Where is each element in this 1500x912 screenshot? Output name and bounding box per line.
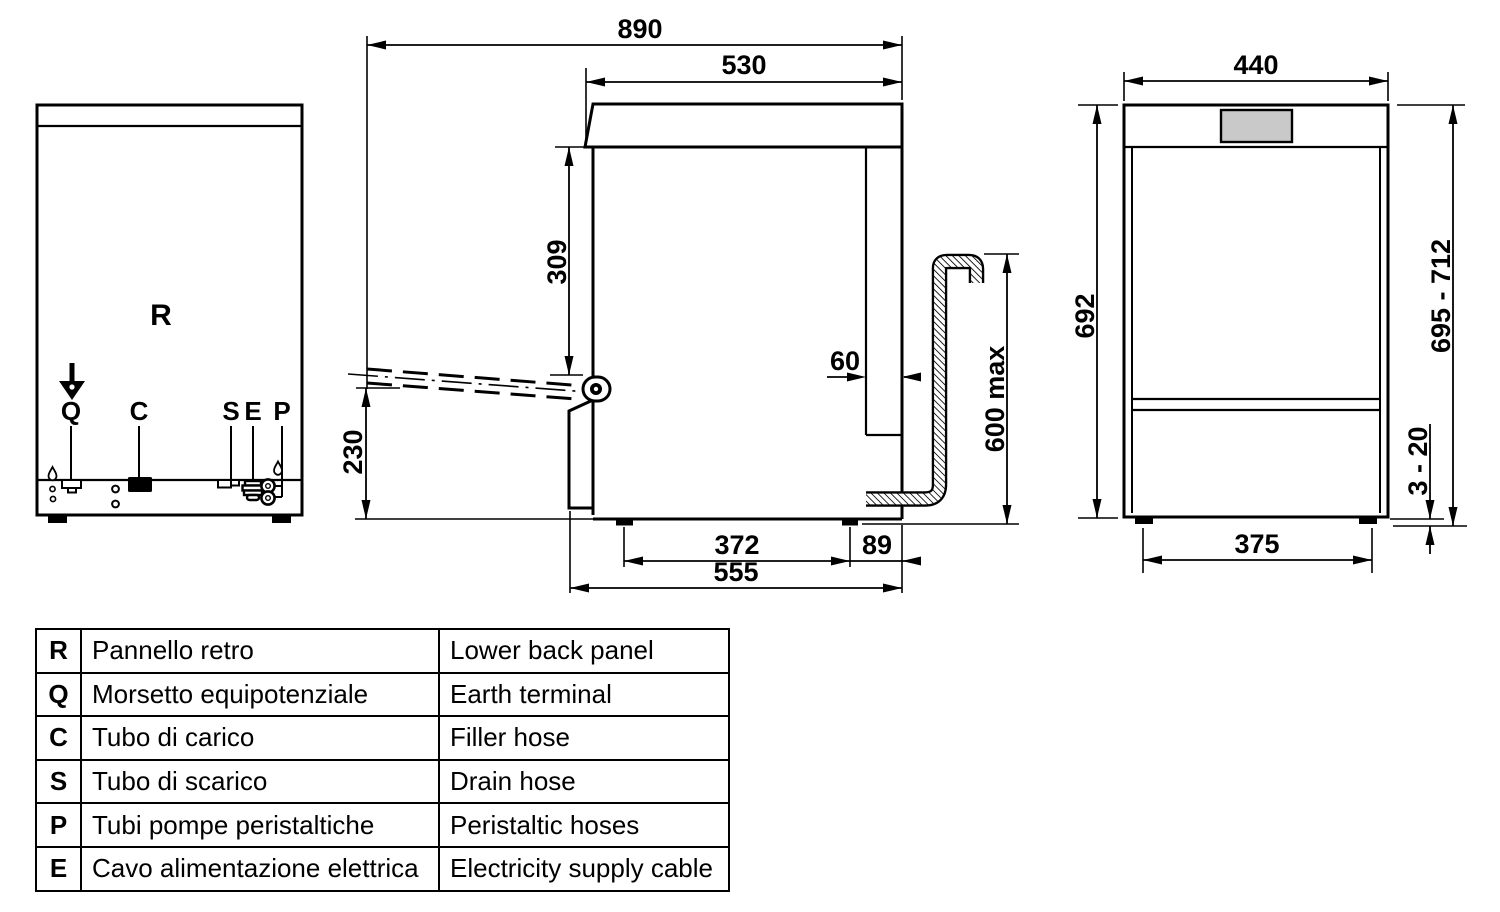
earth-arrow-dot — [69, 384, 74, 389]
dim-60-text: 60 — [830, 346, 860, 376]
dim-692-text: 692 — [1070, 293, 1100, 338]
rear-view: R Q C S E P — [37, 105, 302, 523]
legend-italian: Cavo alimentazione elettrica — [81, 847, 439, 891]
dim-600max-text: 600 max — [980, 346, 1010, 453]
label-peristaltic: P — [273, 396, 290, 426]
front-view: 440 692 695 - 712 3 - 20 — [1070, 50, 1467, 573]
earth-terminal-tab — [68, 488, 76, 493]
legend-table: R Pannello retro Lower back panel Q Mors… — [35, 628, 730, 892]
dim-309-text: 309 — [542, 239, 572, 284]
side-door-lower-profile — [569, 400, 593, 508]
vent-hole — [50, 486, 55, 491]
legend-row-s: S Tubo di scarico Drain hose — [36, 760, 729, 804]
dim-695-712-text: 695 - 712 — [1426, 239, 1456, 353]
earth-terminal — [62, 480, 81, 488]
water-drop-icon-2 — [274, 462, 282, 475]
dim-375-text: 375 — [1234, 529, 1279, 559]
control-display — [1221, 110, 1292, 142]
legend-italian: Tubo di carico — [81, 716, 439, 760]
dim-230-text: 230 — [338, 429, 368, 474]
earth-symbol-icon — [59, 363, 85, 400]
legend-english: Electricity supply cable — [439, 847, 729, 891]
side-view: 890 530 309 230 — [338, 14, 1019, 593]
dim-692: 692 — [1070, 105, 1118, 518]
door-hinge — [583, 377, 610, 401]
legend-letter: C — [36, 716, 81, 760]
drain-outlet — [218, 480, 231, 488]
front-body-outline — [1124, 105, 1388, 517]
dim-89: 89 — [850, 525, 921, 593]
legend-letter: S — [36, 760, 81, 804]
vent-hole — [50, 496, 55, 501]
legend-letter: R — [36, 629, 81, 673]
legend-english: Lower back panel — [439, 629, 729, 673]
side-front-foot — [616, 519, 633, 526]
legend-english: Drain hose — [439, 760, 729, 804]
legend-italian: Tubo di scarico — [81, 760, 439, 804]
legend-italian: Tubi pompe peristaltiche — [81, 803, 439, 847]
rear-components — [49, 462, 283, 508]
legend-english: Filler hose — [439, 716, 729, 760]
filler-hose-inlet — [128, 477, 152, 492]
legend-row-p: P Tubi pompe peristaltiche Peristaltic h… — [36, 803, 729, 847]
dim-230: 230 — [338, 388, 400, 519]
front-left-foot — [1135, 517, 1153, 524]
legend-letter: Q — [36, 673, 81, 717]
open-door-dashed — [348, 369, 601, 399]
drain-outlet-tab — [231, 480, 239, 486]
dim-440-text: 440 — [1233, 50, 1278, 80]
label-filler-hose: C — [130, 396, 149, 426]
dim-309: 309 — [542, 147, 585, 375]
side-rear-foot — [842, 519, 858, 526]
rear-right-foot — [272, 515, 291, 523]
technical-drawing-page: R Q C S E P — [0, 0, 1500, 912]
dim-60: 60 — [827, 346, 921, 382]
dim-3-20-text: 3 - 20 — [1403, 426, 1433, 495]
drain-hose — [866, 262, 977, 500]
dim-375: 375 — [1143, 528, 1372, 573]
dim-890-text: 890 — [617, 14, 662, 44]
legend-english: Peristaltic hoses — [439, 803, 729, 847]
dim-89-text: 89 — [862, 530, 892, 560]
dim-890: 890 — [367, 14, 902, 389]
dim-372-text: 372 — [714, 530, 759, 560]
screw-hole — [112, 501, 119, 508]
legend-letter: P — [36, 803, 81, 847]
legend-italian: Morsetto equipotenziale — [81, 673, 439, 717]
rear-left-foot — [48, 515, 67, 523]
front-right-foot — [1359, 517, 1377, 524]
legend-row-c: C Tubo di carico Filler hose — [36, 716, 729, 760]
legend-english: Earth terminal — [439, 673, 729, 717]
side-top-band — [585, 104, 902, 147]
legend-letter: E — [36, 847, 81, 891]
label-supply-cable: E — [244, 396, 261, 426]
legend-row-q: Q Morsetto equipotenziale Earth terminal — [36, 673, 729, 717]
water-drop-icon — [49, 467, 57, 480]
label-earth-terminal: Q — [61, 396, 81, 426]
dim-555-text: 555 — [713, 557, 758, 587]
legend-row-e: E Cavo alimentazione elettrica Electrici… — [36, 847, 729, 891]
dim-3-20: 3 - 20 — [1390, 424, 1444, 554]
peristaltic-hoses — [261, 479, 274, 504]
screw-hole — [112, 486, 119, 493]
dim-530-text: 530 — [721, 50, 766, 80]
label-drain-hose: S — [222, 396, 239, 426]
legend-italian: Pannello retro — [81, 629, 439, 673]
dim-440: 440 — [1124, 50, 1388, 101]
legend-row-r: R Pannello retro Lower back panel — [36, 629, 729, 673]
rear-panel-label: R — [150, 299, 172, 332]
dim-530: 530 — [586, 50, 902, 145]
